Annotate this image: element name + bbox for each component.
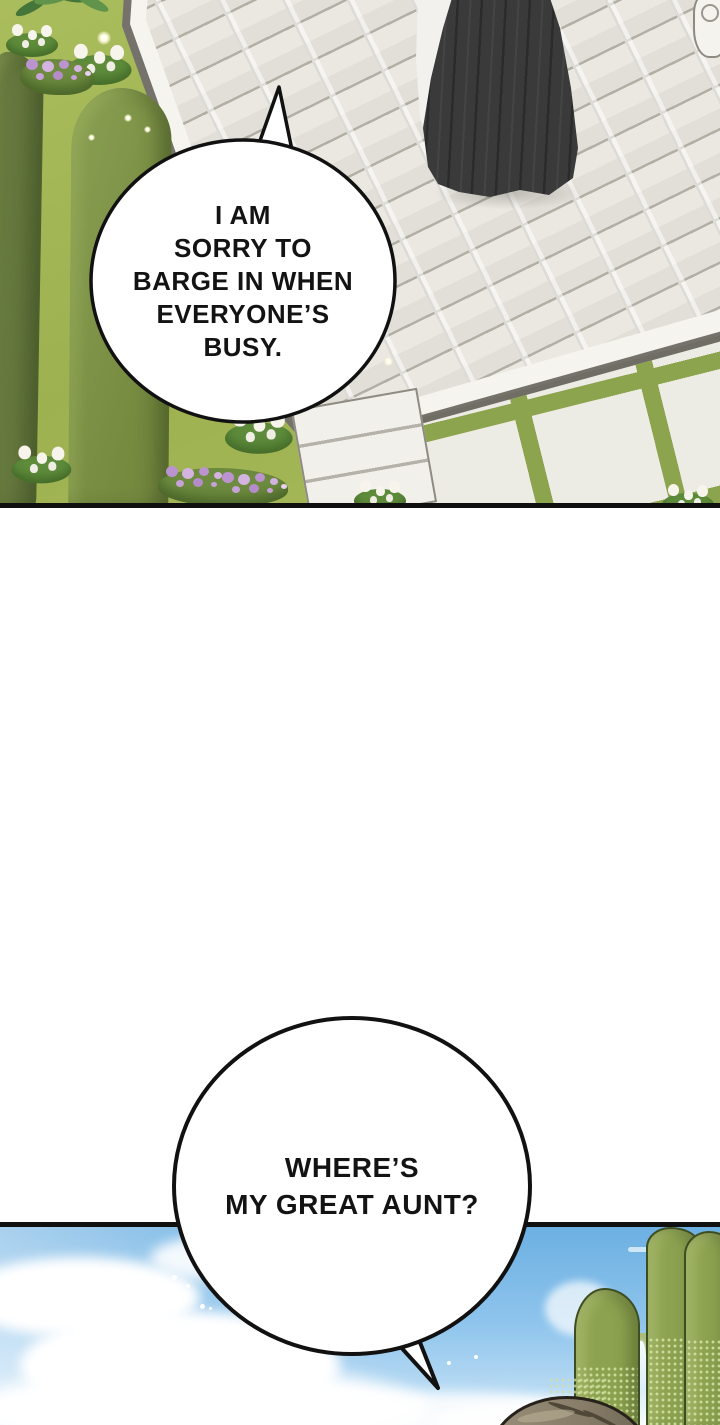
sparkle-dot <box>97 31 111 45</box>
white-tulip-cluster <box>8 24 64 58</box>
speech-line: BARGE IN WHEN <box>93 265 393 298</box>
panel-border-line <box>0 503 720 508</box>
speech-line: I AM <box>93 199 393 232</box>
speech-line: WHERE’S <box>172 1149 532 1186</box>
stone-scroll-ornament <box>693 0 720 58</box>
white-tulip-cluster <box>664 484 720 503</box>
white-tulip-cluster <box>356 480 412 503</box>
purple-flower-bed <box>158 462 288 503</box>
white-tulip-cluster <box>14 445 78 484</box>
speech-bubble-1-text: I AM SORRY TO BARGE IN WHEN EVERYONE’S B… <box>93 199 393 364</box>
cypress-tree <box>684 1231 720 1425</box>
speech-line: BUSY. <box>93 331 393 364</box>
speech-line: SORRY TO <box>93 232 393 265</box>
leafy-plant <box>14 0 114 26</box>
speech-line: EVERYONE’S <box>93 298 393 331</box>
speech-bubble-2-text: WHERE’S MY GREAT AUNT? <box>172 1149 532 1223</box>
comic-page: I AM SORRY TO BARGE IN WHEN EVERYONE’S B… <box>0 0 720 1425</box>
speech-line: MY GREAT AUNT? <box>172 1186 532 1223</box>
